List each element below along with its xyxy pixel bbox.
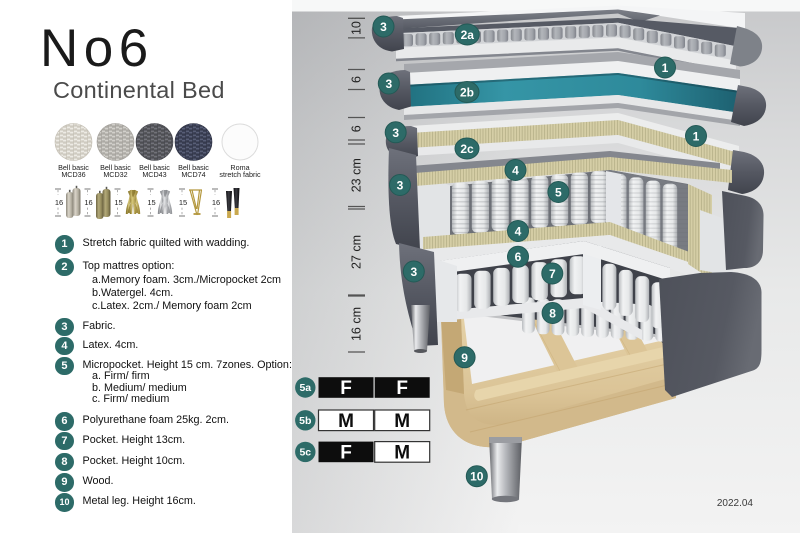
svg-text:4: 4	[515, 225, 522, 239]
svg-text:9: 9	[461, 351, 468, 365]
svg-text:23 cm: 23 cm	[350, 158, 364, 192]
svg-text:F: F	[396, 378, 408, 399]
svg-text:16: 16	[55, 198, 63, 207]
svg-text:4: 4	[512, 164, 519, 178]
svg-text:2022.04: 2022.04	[717, 498, 754, 509]
svg-text:2b: 2b	[460, 86, 474, 100]
svg-text:15: 15	[147, 198, 155, 207]
svg-text:3: 3	[380, 20, 387, 34]
svg-text:15: 15	[114, 198, 122, 207]
svg-text:8: 8	[549, 307, 556, 321]
svg-text:1: 1	[662, 61, 669, 75]
svg-text:16: 16	[212, 198, 220, 207]
svg-text:1: 1	[693, 130, 700, 144]
svg-text:5a: 5a	[299, 382, 311, 394]
svg-text:16: 16	[84, 198, 92, 207]
svg-text:6: 6	[350, 76, 364, 83]
svg-text:6: 6	[350, 125, 364, 132]
svg-text:2a: 2a	[461, 28, 475, 42]
svg-text:10: 10	[350, 21, 364, 35]
svg-text:3: 3	[385, 77, 392, 91]
svg-text:F: F	[340, 442, 352, 463]
svg-text:5: 5	[555, 186, 562, 200]
svg-text:16 cm: 16 cm	[350, 307, 364, 341]
svg-text:M: M	[338, 411, 354, 432]
svg-text:3: 3	[410, 265, 417, 279]
svg-text:7: 7	[549, 267, 556, 281]
svg-text:3: 3	[392, 126, 399, 140]
svg-text:3: 3	[397, 179, 404, 193]
svg-text:M: M	[394, 442, 410, 463]
svg-text:5c: 5c	[299, 446, 311, 458]
svg-text:F: F	[340, 378, 352, 399]
svg-text:6: 6	[515, 250, 522, 264]
svg-text:10: 10	[470, 470, 484, 484]
svg-text:27 cm: 27 cm	[350, 235, 364, 269]
svg-text:15: 15	[179, 198, 187, 207]
svg-text:M: M	[394, 411, 410, 432]
svg-text:5b: 5b	[299, 415, 311, 427]
svg-text:2c: 2c	[460, 142, 474, 156]
